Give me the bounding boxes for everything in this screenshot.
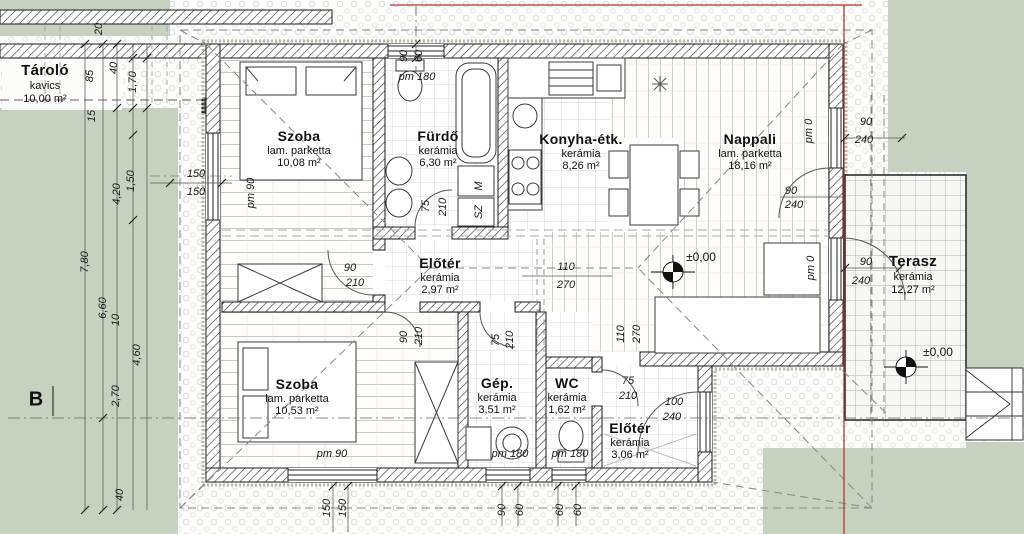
dim-label: 20 — [93, 23, 105, 35]
room-name: Terasz — [889, 253, 937, 271]
dim-label: 90 — [344, 262, 356, 274]
room-label-szoba-1: Szoba lam. parketta 10,08 m² — [267, 128, 331, 170]
dim-label: 1,70 — [127, 71, 139, 92]
dim-label: 100 — [665, 396, 683, 408]
dim-label: 240 — [785, 199, 803, 211]
dim-label: 2,70 — [110, 385, 122, 406]
wardrobe-room2 — [415, 362, 458, 463]
room-area: 10,00 m² — [21, 93, 69, 106]
dim-label: 10 — [110, 314, 122, 326]
dim-label: 60 — [514, 504, 526, 516]
dim-label: 1,50 — [125, 170, 137, 191]
room-label-wc: WC kerámia 1,62 m² — [547, 375, 586, 417]
room-floor: lam. parketta — [718, 147, 782, 160]
room-label-eloter-1: Előtér kerámia 2,97 m² — [419, 255, 460, 297]
dim-label: 60 — [554, 504, 566, 516]
dim-label: 6,60 — [97, 297, 109, 318]
dim-label: 15 — [86, 110, 98, 122]
dim-label: 75 — [420, 200, 432, 212]
dim-label: 7,80 — [79, 251, 91, 272]
room-label-konyha: Konyha-étk. kerámia 8,26 m² — [539, 131, 622, 173]
room-name: Fürdő — [417, 128, 458, 145]
room-area: 18,16 m² — [718, 160, 782, 173]
dim-label: pm 0 — [805, 256, 817, 280]
room-floor: kerámia — [609, 436, 650, 449]
room-name: Előtér — [609, 420, 650, 437]
room-floor: lam. parketta — [267, 144, 331, 157]
room-area: 2,97 m² — [419, 284, 460, 297]
dim-label: 210 — [413, 327, 425, 345]
room-floor: kerámia — [547, 391, 586, 404]
dim-label: 270 — [631, 325, 643, 343]
room-label-eloter-2: Előtér kerámia 3,06 m² — [609, 420, 650, 462]
room-floor: kerámia — [889, 271, 937, 284]
dim-label: 85 — [84, 70, 96, 82]
dim-label: pm 180 — [552, 448, 589, 460]
dim-label: 4,20 — [111, 183, 123, 204]
dim-label: pm 180 — [492, 448, 529, 460]
section-marker-b: B — [29, 389, 43, 412]
dim-label: pm 90 — [317, 448, 348, 460]
room-floor: kerámia — [477, 391, 516, 404]
room-name: Nappali — [718, 131, 782, 148]
dim-label: 150 — [187, 168, 205, 180]
dim-label: 240 — [855, 134, 873, 146]
room-floor: lam. parketta — [265, 392, 329, 405]
room-label-szoba-2: Szoba lam. parketta 10,53 m² — [265, 376, 329, 418]
wardrobe-room1 — [238, 264, 322, 302]
room-floor: kavics — [21, 80, 69, 93]
room-area: 6,30 m² — [417, 157, 458, 170]
room-name: Tároló — [21, 62, 69, 80]
dim-label: 90 — [785, 185, 797, 197]
dim-label: 90 — [398, 331, 410, 343]
dim-label: 270 — [557, 279, 575, 291]
room-area: 12,27 m² — [889, 284, 937, 297]
room-floor: kerámia — [419, 271, 460, 284]
room-label-tarolo: Tároló kavics 10,00 m² — [21, 62, 69, 106]
dim-label: 60 — [413, 50, 425, 62]
dim-label: 75 — [490, 334, 502, 346]
dim-label: 210 — [504, 331, 516, 349]
dim-label: 90 — [496, 504, 508, 516]
room-name: Gép. — [477, 375, 516, 392]
room-floor: kerámia — [539, 147, 622, 160]
room-name: WC — [547, 375, 586, 392]
room-name: Konyha-étk. — [539, 131, 622, 148]
room-label-nappali: Nappali lam. parketta 18,16 m² — [718, 131, 782, 173]
room-area: 10,53 m² — [265, 405, 329, 418]
terrace-stairs — [966, 368, 1023, 440]
room-area: 3,51 m² — [477, 404, 516, 417]
room-floor: kerámia — [417, 144, 458, 157]
room-area: 1,62 m² — [547, 404, 586, 417]
room-name: Szoba — [267, 128, 331, 145]
dim-label: pm 180 — [399, 71, 436, 83]
dim-label: 90 — [860, 116, 872, 128]
dim-label: 210 — [346, 277, 364, 289]
dim-label: 60 — [572, 504, 584, 516]
floor-plan-page: Szoba lam. parketta 10,08 m² Fürdő kerám… — [0, 0, 1024, 534]
room-label-furdo: Fürdő kerámia 6,30 m² — [417, 128, 458, 170]
dim-label: 90 — [398, 50, 410, 62]
dim-label: 240 — [663, 411, 681, 423]
dim-label: 110 — [615, 325, 627, 343]
level-label: ±0,00 — [686, 250, 716, 264]
dim-label: 75 — [622, 375, 634, 387]
dim-label: 150 — [337, 499, 349, 517]
room-name: Szoba — [265, 376, 329, 393]
dim-label: 210 — [437, 198, 449, 216]
dim-label: 90 — [860, 256, 872, 268]
room-label-terasz: Terasz kerámia 12,27 m² — [889, 253, 937, 297]
dim-label: M — [473, 181, 485, 190]
dim-label: pm 0 — [803, 119, 815, 143]
dim-label: 40 — [114, 489, 126, 501]
level-label: ±0,00 — [923, 345, 953, 359]
room-label-gep: Gép. kerámia 3,51 m² — [477, 375, 516, 417]
dim-label: 210 — [619, 390, 637, 402]
room-name: Előtér — [419, 255, 460, 272]
dim-label: 150 — [187, 186, 205, 198]
room-area: 8,26 m² — [539, 160, 622, 173]
dim-label: 110 — [557, 261, 575, 273]
dim-label: 150 — [321, 499, 333, 517]
dim-label: 4,60 — [131, 344, 143, 365]
lamp-symbol — [652, 76, 668, 92]
room-area: 3,06 m² — [609, 449, 650, 462]
dim-label: SZ — [473, 205, 485, 219]
dim-label: 40 — [108, 62, 120, 74]
dim-label: pm 90 — [245, 178, 257, 209]
room-area: 10,08 m² — [267, 157, 331, 170]
dim-label: 240 — [852, 275, 870, 287]
